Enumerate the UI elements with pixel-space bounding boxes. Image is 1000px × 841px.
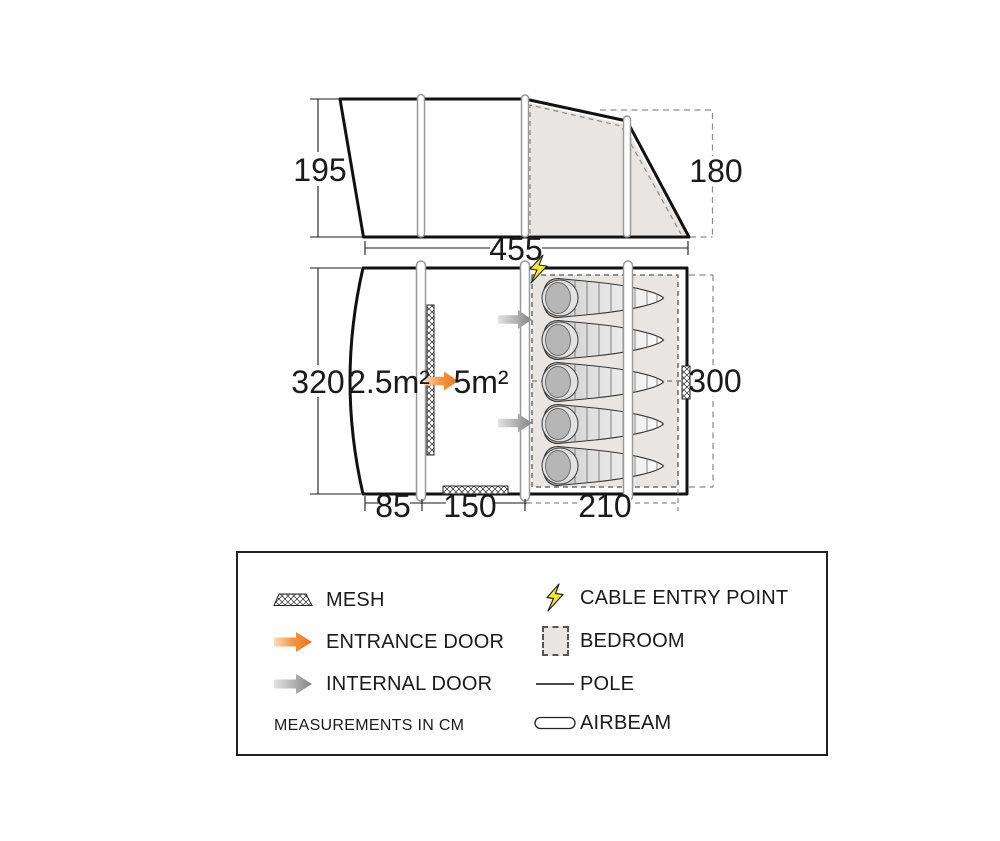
tent-floorplan-diagram: 195 180 455 bbox=[0, 0, 1000, 841]
dim-label-455: 455 bbox=[489, 231, 542, 267]
legend-label-airbeam: AIRBEAM bbox=[580, 712, 671, 735]
legend-label-bedroom: BEDROOM bbox=[580, 630, 685, 653]
legend-item-airbeam: AIRBEAM bbox=[534, 708, 671, 738]
side-elevation-view: 195 180 bbox=[293, 95, 742, 238]
legend-item-mesh: MESH bbox=[270, 585, 385, 615]
living-area-label: 5m² bbox=[453, 364, 508, 400]
legend-label-pole: POLE bbox=[580, 673, 634, 696]
airbeam-pole bbox=[522, 95, 529, 237]
legend-item-pole: POLE bbox=[534, 669, 634, 699]
porch-area-label: 2.5m² bbox=[348, 364, 430, 400]
cable-entry-icon bbox=[544, 583, 566, 613]
legend-item-internal-door: INTERNAL DOOR bbox=[270, 669, 492, 699]
airbeam-icon bbox=[534, 716, 576, 730]
airbeam-pole bbox=[521, 261, 530, 501]
dim-label-210: 210 bbox=[578, 488, 631, 524]
legend-item-bedroom: BEDROOM bbox=[534, 626, 685, 656]
airbeam-pole bbox=[624, 261, 633, 501]
legend-item-entrance-door: ENTRANCE DOOR bbox=[270, 627, 504, 657]
internal-door-icon bbox=[273, 673, 313, 695]
bedroom-icon bbox=[542, 626, 569, 656]
floor-plan-view: 2.5m² 5m² 320 300 bbox=[291, 255, 741, 524]
legend-label-entrance-door: ENTRANCE DOOR bbox=[326, 631, 504, 654]
legend-label-cable-entry: CABLE ENTRY POINT bbox=[580, 587, 788, 610]
dim-label-320: 320 bbox=[291, 364, 344, 400]
measurements-note: MEASUREMENTS IN CM bbox=[274, 717, 464, 735]
pole-icon bbox=[535, 681, 575, 687]
legend-label-internal-door: INTERNAL DOOR bbox=[326, 673, 492, 696]
dim-label-150: 150 bbox=[443, 488, 496, 524]
legend-item-cable-entry: CABLE ENTRY POINT bbox=[534, 583, 788, 613]
dim-label-195: 195 bbox=[293, 152, 346, 188]
dim-label-300: 300 bbox=[688, 363, 741, 399]
airbeam-pole bbox=[624, 116, 631, 237]
entrance-door-icon bbox=[273, 631, 313, 653]
legend-label-mesh: MESH bbox=[326, 589, 385, 612]
mesh-icon bbox=[273, 593, 313, 607]
legend-box: MESH ENTRANCE DOOR INTERNAL DOOR MEASURE… bbox=[236, 551, 828, 756]
dim-label-180: 180 bbox=[689, 153, 742, 189]
dim-label-85: 85 bbox=[375, 488, 411, 524]
airbeam-pole bbox=[418, 95, 425, 238]
legend-note: MEASUREMENTS IN CM bbox=[274, 711, 464, 741]
